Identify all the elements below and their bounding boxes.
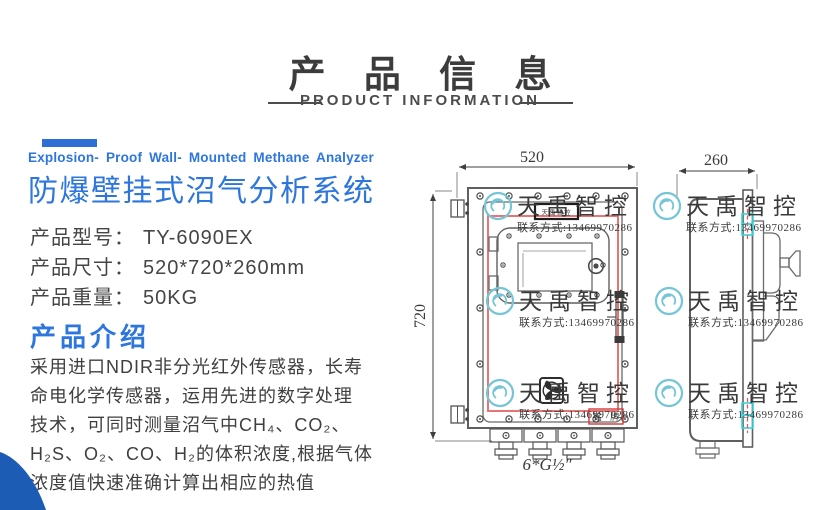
watermark-brand: 天禹智控 xyxy=(686,194,802,219)
spec-value-model: TY-6090EX xyxy=(143,227,254,249)
watermark: 天禹智控 联系方式:13469970286 xyxy=(654,193,802,234)
watermark-contact: 联系方式:13469970286 xyxy=(519,407,635,421)
intro-line: 采用进口NDIR非分光红外传感器，长寿 xyxy=(30,353,375,382)
hinge-top xyxy=(451,200,469,217)
page-title: 产 品 信 息 xyxy=(0,44,840,98)
blue-accent-bar xyxy=(42,139,97,147)
watermark: 天禹智控 联系方式:13469970286 xyxy=(656,380,804,421)
hinge-bottom xyxy=(451,406,469,423)
watermark-contact: 联系方式:13469970286 xyxy=(686,220,802,234)
product-title-cn: 防爆壁挂式沼气分析系统 xyxy=(28,166,375,210)
intro-heading: 产品介绍 xyxy=(30,317,150,354)
watermark-brand: 天禹智控 xyxy=(519,381,635,406)
dim-height-label: 720 xyxy=(412,304,429,328)
corner-decoration xyxy=(0,448,60,510)
spec-row-weight: 产品重量：50KG xyxy=(30,281,198,310)
watermark-contact: 联系方式:13469970286 xyxy=(519,315,635,329)
intro-line: 命电化学传感器，运用先进的数字处理 xyxy=(30,382,375,411)
spec-value-weight: 50KG xyxy=(143,287,198,309)
watermark: 天禹智控 联系方式:13469970286 xyxy=(487,380,635,421)
spec-label-size: 产品尺寸： xyxy=(30,257,135,279)
gland-spec-label: 6*G½″ xyxy=(522,455,572,474)
spec-row-size: 产品尺寸：520*720*260mm xyxy=(30,251,305,280)
spec-label-model: 产品型号： xyxy=(30,227,135,249)
brand-logo-icon xyxy=(656,288,682,314)
watermark-brand: 天禹智控 xyxy=(688,289,804,314)
dim-depth-label: 260 xyxy=(704,152,728,169)
watermark-brand: 天禹智控 xyxy=(517,194,633,219)
watermark-brand: 天禹智控 xyxy=(688,381,804,406)
product-info-page: 产 品 信 息 PRODUCT INFORMATION Explosion- P… xyxy=(0,0,840,510)
watermark: 天禹智控 联系方式:13469970286 xyxy=(656,288,804,329)
watermark: 天禹智控 联系方式:13469970286 xyxy=(487,288,635,329)
watermark-contact: 联系方式:13469970286 xyxy=(688,407,804,421)
intro-line: 浓度值快速准确计算出相应的热值 xyxy=(30,469,375,498)
page-subtitle: PRODUCT INFORMATION xyxy=(0,92,840,109)
side-knob xyxy=(789,251,800,276)
spec-value-size: 520*720*260mm xyxy=(143,257,305,279)
intro-paragraph: 采用进口NDIR非分光红外传感器，长寿 命电化学传感器，运用先进的数字处理 技术… xyxy=(30,353,375,498)
brand-logo-icon xyxy=(654,193,680,219)
display-screen xyxy=(518,243,592,291)
spec-row-model: 产品型号：TY-6090EX xyxy=(30,221,254,250)
product-tagline-en: Explosion- Proof Wall- Mounted Methane A… xyxy=(28,150,374,165)
brand-logo-icon xyxy=(487,288,513,314)
watermark-brand: 天禹智控 xyxy=(519,289,635,314)
subtitle-right-divider xyxy=(519,102,573,104)
watermark-contact: 联系方式:13469970286 xyxy=(688,315,804,329)
brand-logo-icon xyxy=(487,380,513,406)
dim-width-label: 520 xyxy=(520,149,544,166)
watermarks: 天禹智控 联系方式:13469970286 天禹智控 联系方式:13469970… xyxy=(485,193,804,421)
spec-label-weight: 产品重量： xyxy=(30,287,135,309)
intro-line: H₂S、O₂、CO、H₂的体积浓度,根据气体 xyxy=(30,440,375,469)
intro-line: 技术，可同时测量沼气中CH₄、CO₂、 xyxy=(30,411,375,440)
brand-logo-icon xyxy=(656,380,682,406)
technical-drawing: 520 720 xyxy=(410,140,840,485)
watermark-contact: 联系方式:13469970286 xyxy=(517,220,633,234)
